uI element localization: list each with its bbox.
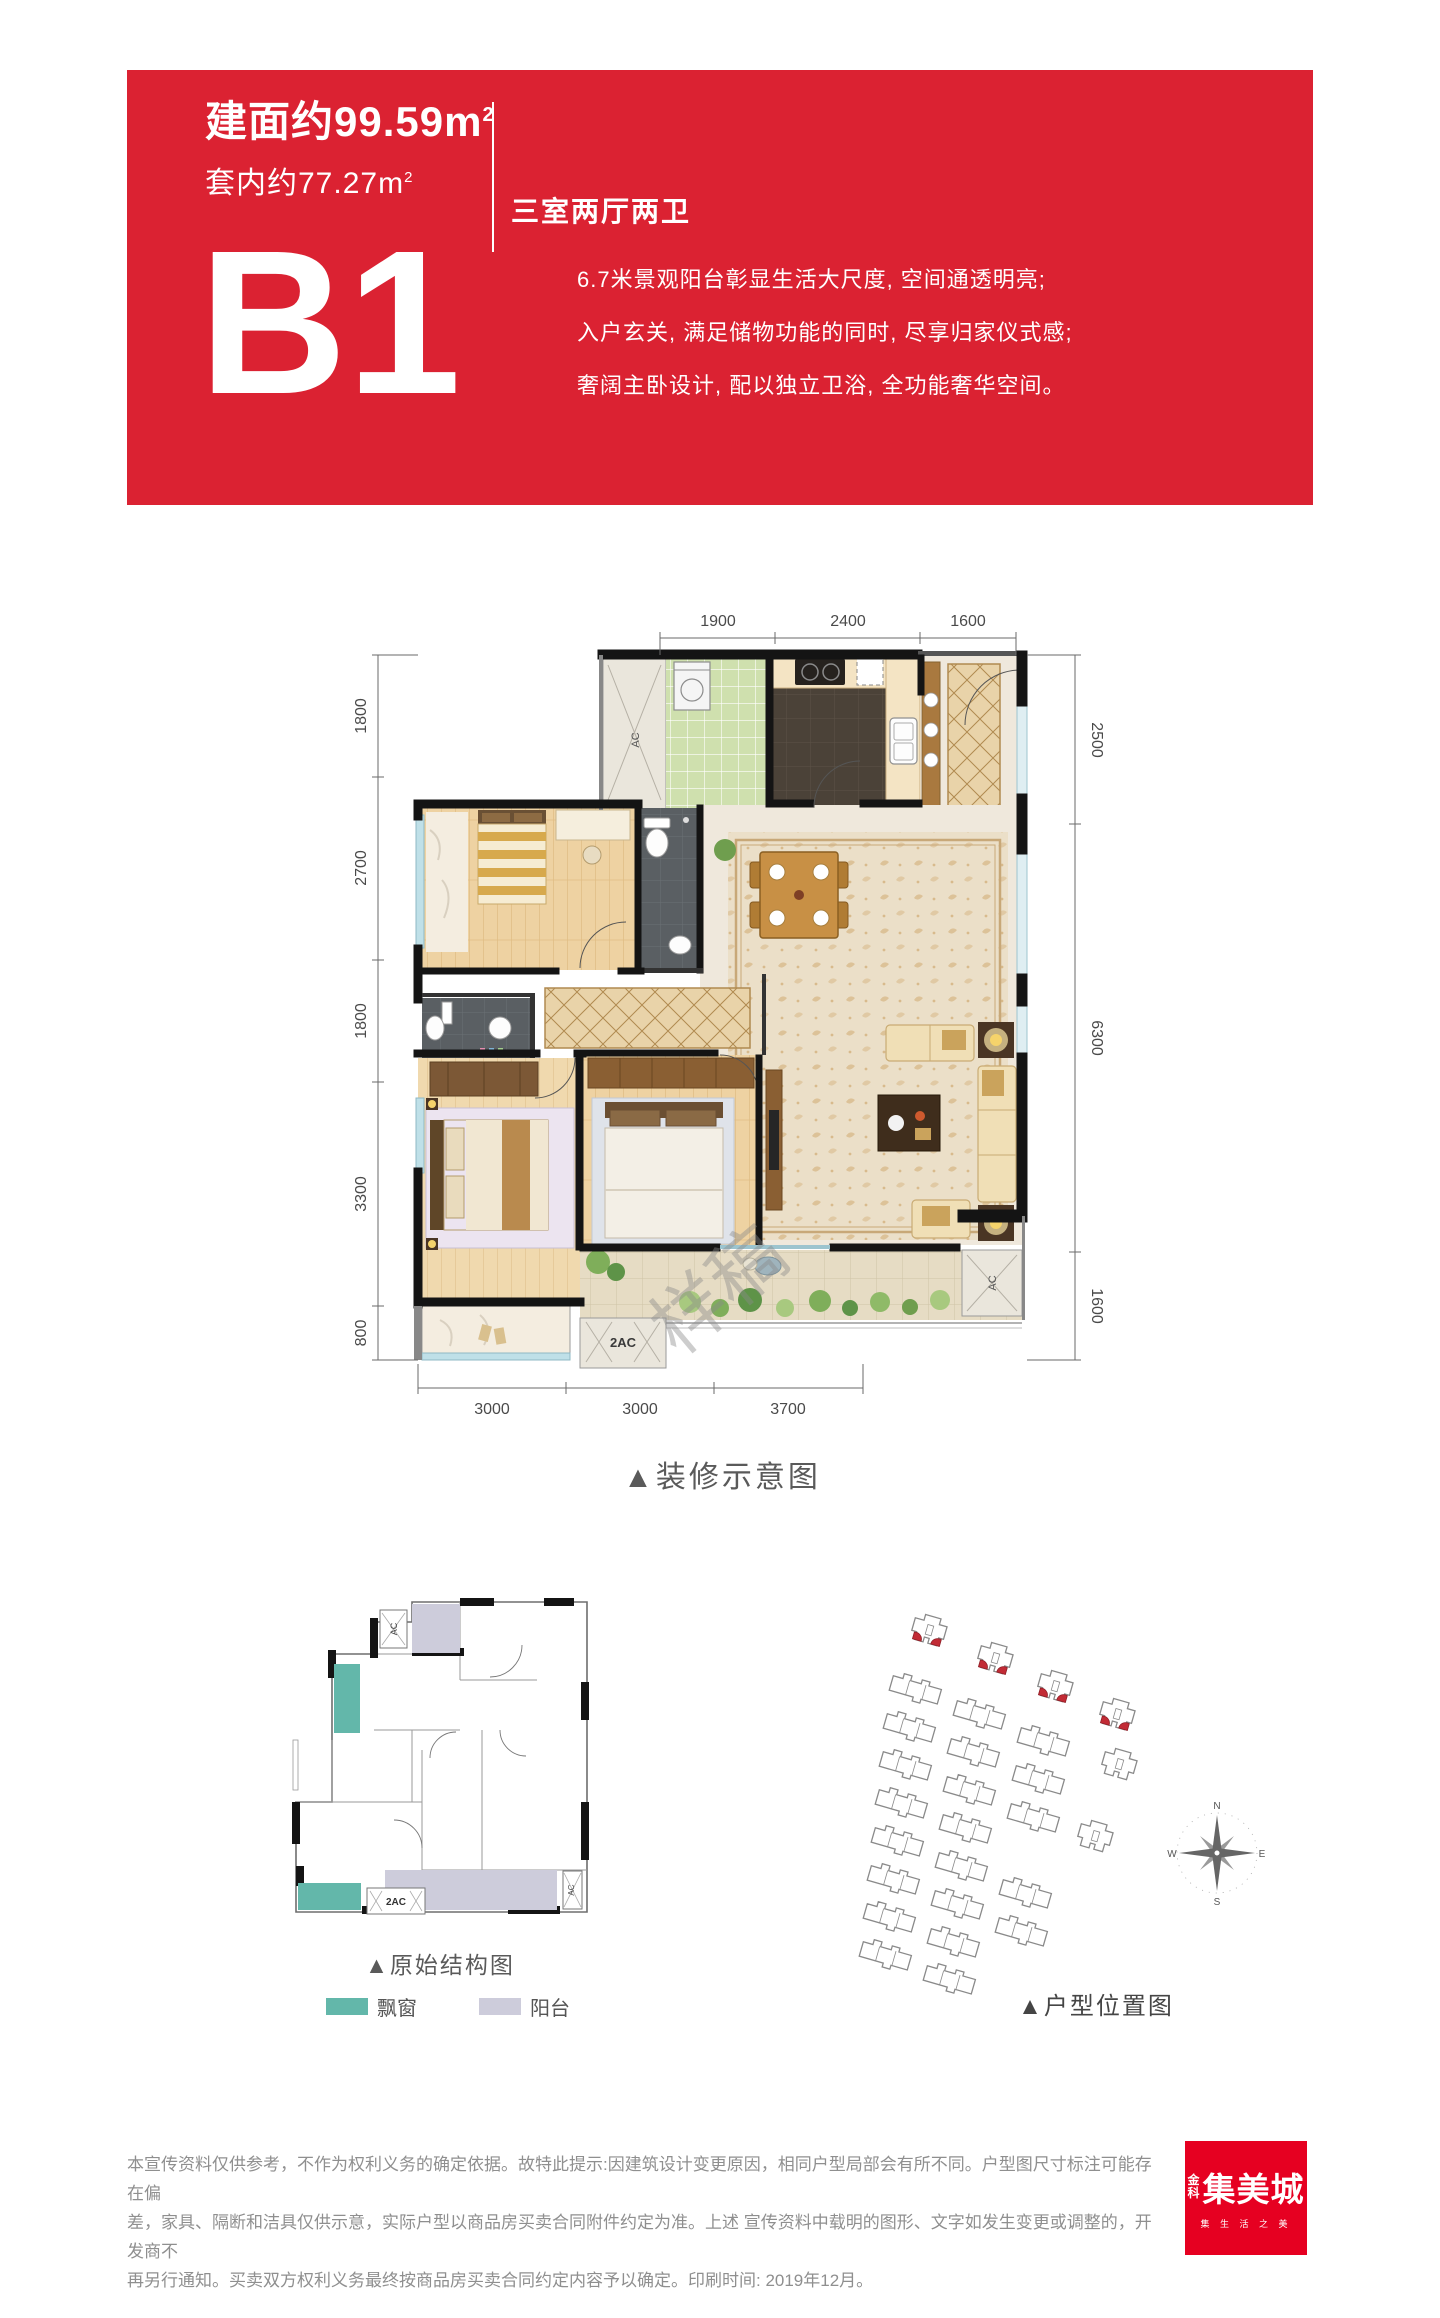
- site-buildings: [858, 1612, 1139, 1998]
- ac-platform-right: AC: [962, 1250, 1022, 1316]
- svg-text:AC: AC: [987, 1275, 999, 1290]
- svg-text:AC: AC: [389, 1622, 399, 1635]
- brand-logo: 金 科 集美城 集 生 活 之 美: [1185, 2141, 1307, 2255]
- structure-plan: AC 2AC AC: [282, 1590, 622, 1930]
- laundry-balcony: [666, 655, 770, 810]
- banner-divider: [492, 102, 494, 252]
- svg-text:N: N: [1213, 1801, 1220, 1812]
- structure-bay-bottom: [298, 1883, 361, 1910]
- header-banner: 建面约99.59m2 套内约77.27m2 三室两厅两卫 B1 6.7米景观阳台…: [127, 70, 1313, 505]
- svg-text:1800: 1800: [353, 1003, 370, 1039]
- svg-text:1800: 1800: [353, 698, 370, 734]
- layout-type: 三室两厅两卫: [511, 190, 691, 230]
- svg-text:800: 800: [353, 1320, 370, 1347]
- desc-line-1: 6.7米景观阳台彰显生活大尺度, 空间通透明亮;: [577, 253, 1073, 306]
- flyer-page: 建面约99.59m2 套内约77.27m2 三室两厅两卫 B1 6.7米景观阳台…: [0, 0, 1440, 2318]
- svg-text:3300: 3300: [353, 1176, 370, 1212]
- structure-window-left: [293, 1740, 298, 1790]
- bedroom-bay-window: [416, 815, 424, 948]
- living-window: [1017, 1002, 1027, 1057]
- svg-text:6300: 6300: [1088, 1020, 1105, 1056]
- logo-brand-char2: 科: [1187, 2187, 1199, 2200]
- bathroom-ensuite: [422, 998, 535, 1058]
- site-map-caption: ▲户型位置图: [946, 1986, 1246, 2021]
- bay-window-swatch: [326, 1998, 368, 2015]
- kitchen: [770, 655, 920, 805]
- bathroom-main-floor: [638, 808, 700, 970]
- dining-window: [1017, 850, 1027, 978]
- built-area-text: 建面约99.59m: [205, 98, 482, 145]
- decorated-floor-plan: AC: [330, 550, 1170, 1420]
- svg-text:2AC: 2AC: [386, 1897, 406, 1908]
- site-map: N S E W: [855, 1598, 1275, 2008]
- balcony-swatch: [479, 1998, 521, 2015]
- svg-text:3000: 3000: [474, 1401, 510, 1418]
- logo-brand-stack: 金 科: [1187, 2174, 1199, 2200]
- svg-text:2400: 2400: [830, 613, 866, 630]
- structure-bay-left: [334, 1664, 360, 1733]
- legend: 飘窗 阳台: [326, 1992, 632, 2021]
- structure-ac-right: AC: [563, 1871, 582, 1909]
- disclaimer: 本宣传资料仅供参考，不作为权利义务的确定依据。故特此提示:因建筑设计变更原因，相…: [127, 2150, 1167, 2295]
- svg-text:W: W: [1167, 1849, 1177, 1860]
- balcony-label: 阳台: [530, 1992, 570, 2021]
- svg-text:3700: 3700: [770, 1401, 806, 1418]
- unit-description: 6.7米景观阳台彰显生活大尺度, 空间通透明亮; 入户玄关, 满足储物功能的同时…: [577, 253, 1073, 412]
- inner-area-sup: 2: [404, 169, 413, 186]
- disclaimer-line-1: 本宣传资料仅供参考，不作为权利义务的确定依据。故特此提示:因建筑设计变更原因，相…: [127, 2150, 1167, 2208]
- compass-icon: N S E W: [1167, 1801, 1265, 1908]
- bedroom-second: [580, 1055, 760, 1247]
- svg-text:1600: 1600: [950, 613, 986, 630]
- disclaimer-line-2: 差，家具、隔断和洁具仅供示意，实际户型以商品房买卖合同附件约定为准。上述 宣传资…: [127, 2208, 1167, 2266]
- svg-text:1600: 1600: [1088, 1288, 1105, 1324]
- structure-ac-top: AC: [380, 1610, 407, 1648]
- logo-name: 集美城: [1203, 2163, 1305, 2211]
- master-window: [416, 1098, 424, 1173]
- legend-item-bay-window: 飘窗: [326, 1992, 417, 2021]
- svg-text:2700: 2700: [353, 850, 370, 886]
- structure-plan-caption: ▲原始结构图: [290, 1946, 590, 1980]
- svg-text:E: E: [1259, 1849, 1266, 1860]
- svg-text:1900: 1900: [700, 613, 736, 630]
- desc-line-2: 入户玄关, 满足储物功能的同时, 尽享归家仪式感;: [577, 306, 1073, 359]
- bedroom-small: [418, 805, 638, 970]
- structure-ac-2ac: 2AC: [367, 1888, 425, 1914]
- svg-text:2AC: 2AC: [610, 1335, 637, 1350]
- disclaimer-line-3: 再另行通知。买卖双方权利义务最终按商品房买卖合同约定内容予以确定。印刷时间: 2…: [127, 2266, 1167, 2295]
- dining-table: [750, 852, 848, 938]
- logo-slogan: 集 生 活 之 美: [1185, 2217, 1307, 2230]
- bay-window-label: 飘窗: [377, 1992, 417, 2021]
- inner-area-text: 套内约77.27m: [205, 167, 404, 200]
- inner-area: 套内约77.27m2: [205, 158, 413, 202]
- svg-text:2500: 2500: [1088, 722, 1105, 758]
- entry-window: [1017, 702, 1027, 798]
- svg-text:AC: AC: [630, 732, 642, 747]
- unit-name: B1: [199, 218, 461, 428]
- svg-text:AC: AC: [567, 1884, 576, 1895]
- legend-item-balcony: 阳台: [479, 1992, 570, 2021]
- entry-hall: [922, 655, 1022, 825]
- structure-balcony-top: [412, 1604, 460, 1653]
- ac-platform-top: AC: [603, 655, 666, 810]
- svg-text:3000: 3000: [622, 1401, 658, 1418]
- built-area: 建面约99.59m2: [205, 88, 495, 149]
- decorated-plan-caption: ▲装修示意图: [522, 1452, 922, 1496]
- master-bay-window: [422, 1306, 570, 1360]
- hallway-runner: [545, 988, 750, 1048]
- desc-line-3: 奢阔主卧设计, 配以独立卫浴, 全功能奢华空间。: [577, 359, 1073, 412]
- bedroom-master: [418, 1058, 580, 1306]
- logo-row: 金 科 集美城: [1185, 2163, 1307, 2211]
- svg-text:S: S: [1214, 1897, 1221, 1908]
